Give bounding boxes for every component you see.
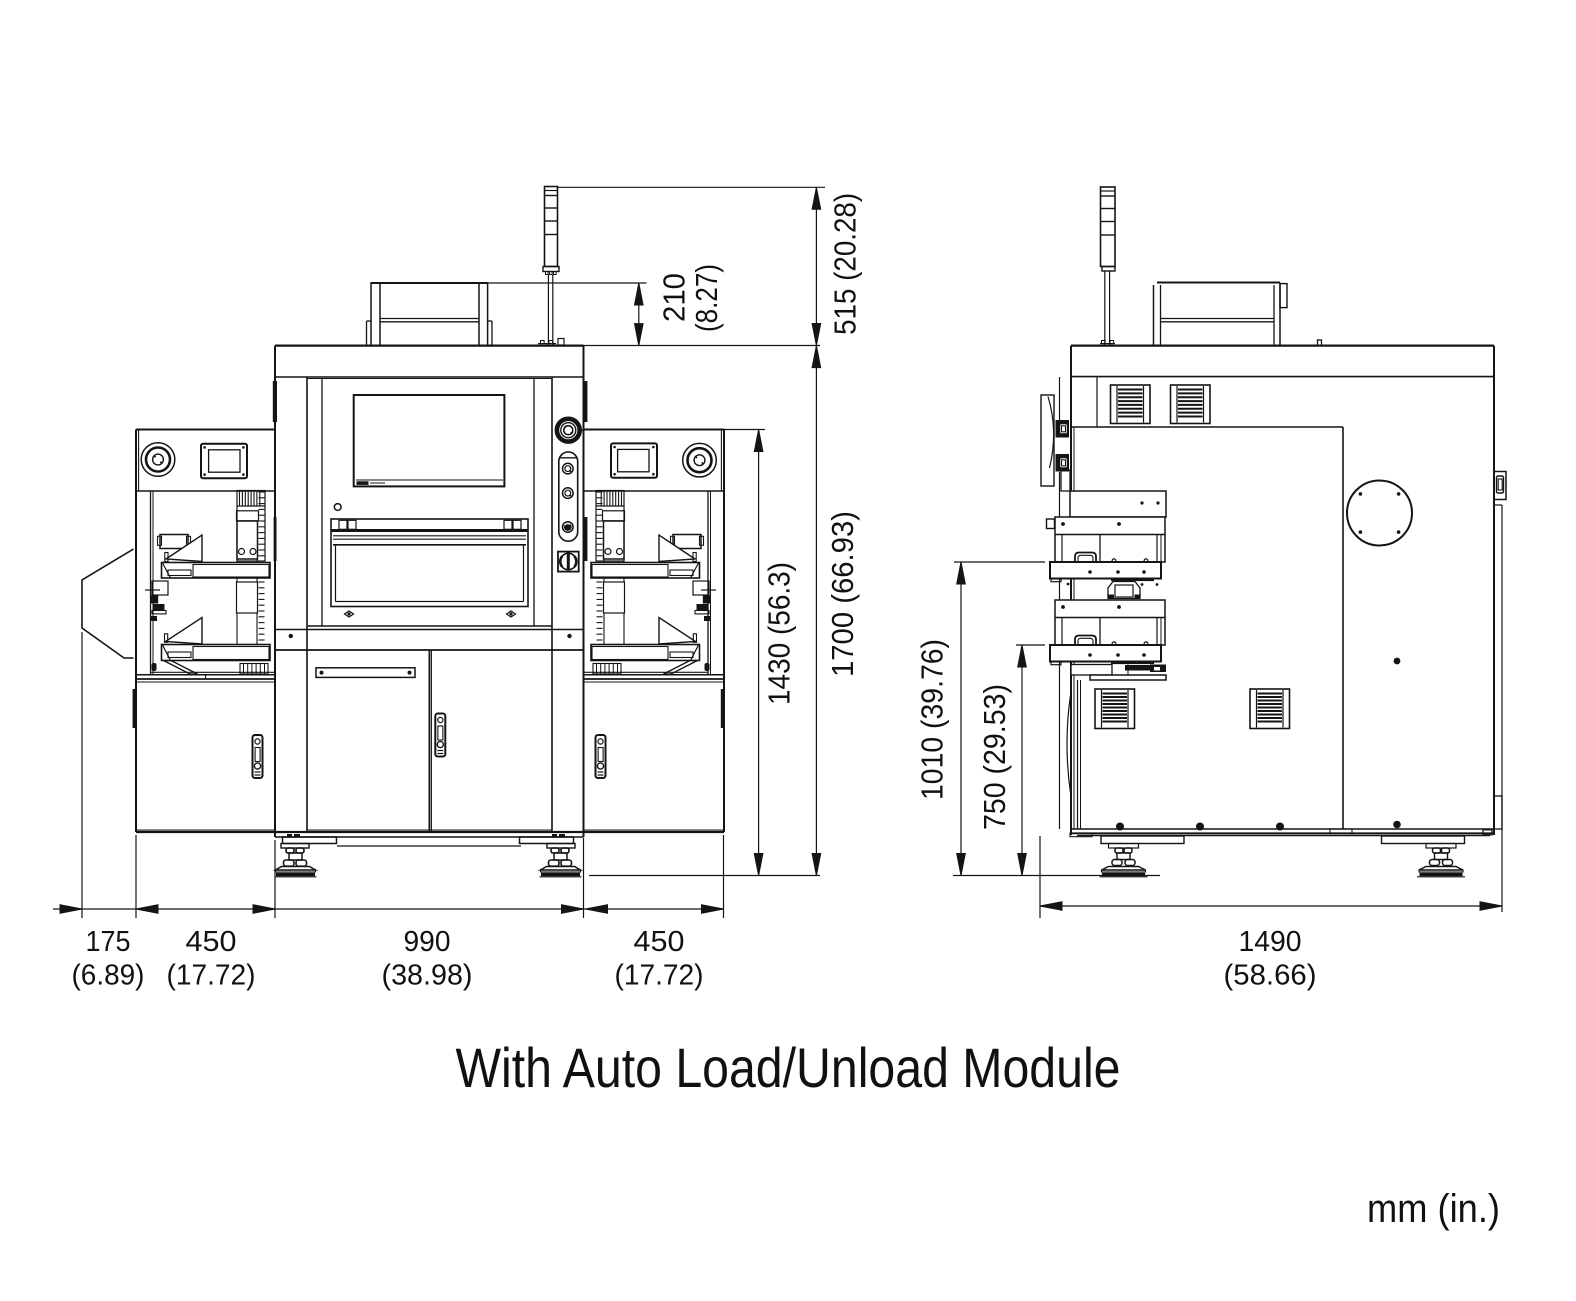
svg-text:(58.66): (58.66) bbox=[1224, 960, 1317, 992]
svg-text:750 (29.53): 750 (29.53) bbox=[977, 684, 1012, 830]
svg-text:1010 (39.76): 1010 (39.76) bbox=[914, 639, 949, 800]
svg-text:1430 (56.3): 1430 (56.3) bbox=[761, 562, 796, 705]
svg-text:175: 175 bbox=[86, 926, 131, 958]
svg-text:990: 990 bbox=[404, 926, 451, 958]
svg-text:1490: 1490 bbox=[1239, 926, 1302, 958]
svg-text:515 (20.28): 515 (20.28) bbox=[828, 193, 863, 335]
svg-text:1700 (66.93): 1700 (66.93) bbox=[825, 511, 860, 677]
svg-text:(38.98): (38.98) bbox=[382, 960, 473, 992]
svg-text:(8.27): (8.27) bbox=[689, 264, 724, 332]
svg-text:(17.72): (17.72) bbox=[615, 960, 704, 992]
svg-text:450: 450 bbox=[634, 926, 685, 958]
svg-text:(6.89): (6.89) bbox=[72, 960, 145, 992]
svg-text:210: 210 bbox=[656, 273, 691, 322]
svg-text:mm (in.): mm (in.) bbox=[1367, 1187, 1500, 1231]
svg-text:(17.72): (17.72) bbox=[167, 960, 256, 992]
svg-text:With Auto Load/Unload Module: With Auto Load/Unload Module bbox=[456, 1036, 1121, 1099]
svg-text:450: 450 bbox=[186, 926, 237, 958]
